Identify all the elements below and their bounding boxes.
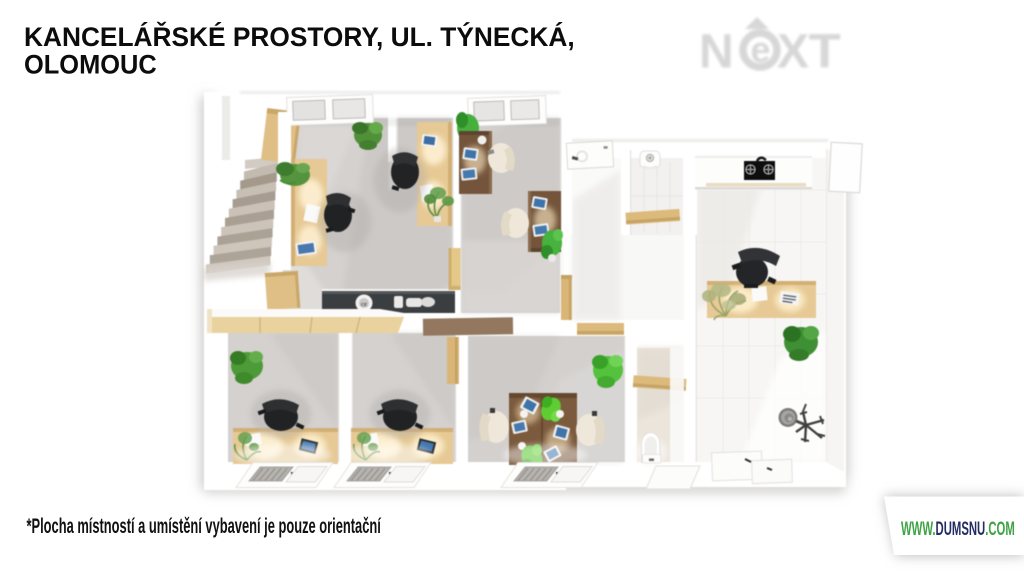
svg-text:T: T xyxy=(809,24,841,78)
svg-text:WWW.DUMSNU.COM: WWW.DUMSNU.COM xyxy=(901,519,1015,540)
svg-text:N: N xyxy=(699,26,734,79)
svg-text:CE: CE xyxy=(361,302,367,307)
svg-text:*Plocha místností a umístění v: *Plocha místností a umístění vybavení je… xyxy=(27,514,382,538)
svg-text:e: e xyxy=(750,29,770,70)
svg-text:OLOMOUC: OLOMOUC xyxy=(24,49,157,80)
svg-text:X: X xyxy=(777,26,809,79)
svg-text:KANCELÁŘSKÉ PROSTORY, UL. TÝNE: KANCELÁŘSKÉ PROSTORY, UL. TÝNECKÁ, xyxy=(24,22,575,52)
